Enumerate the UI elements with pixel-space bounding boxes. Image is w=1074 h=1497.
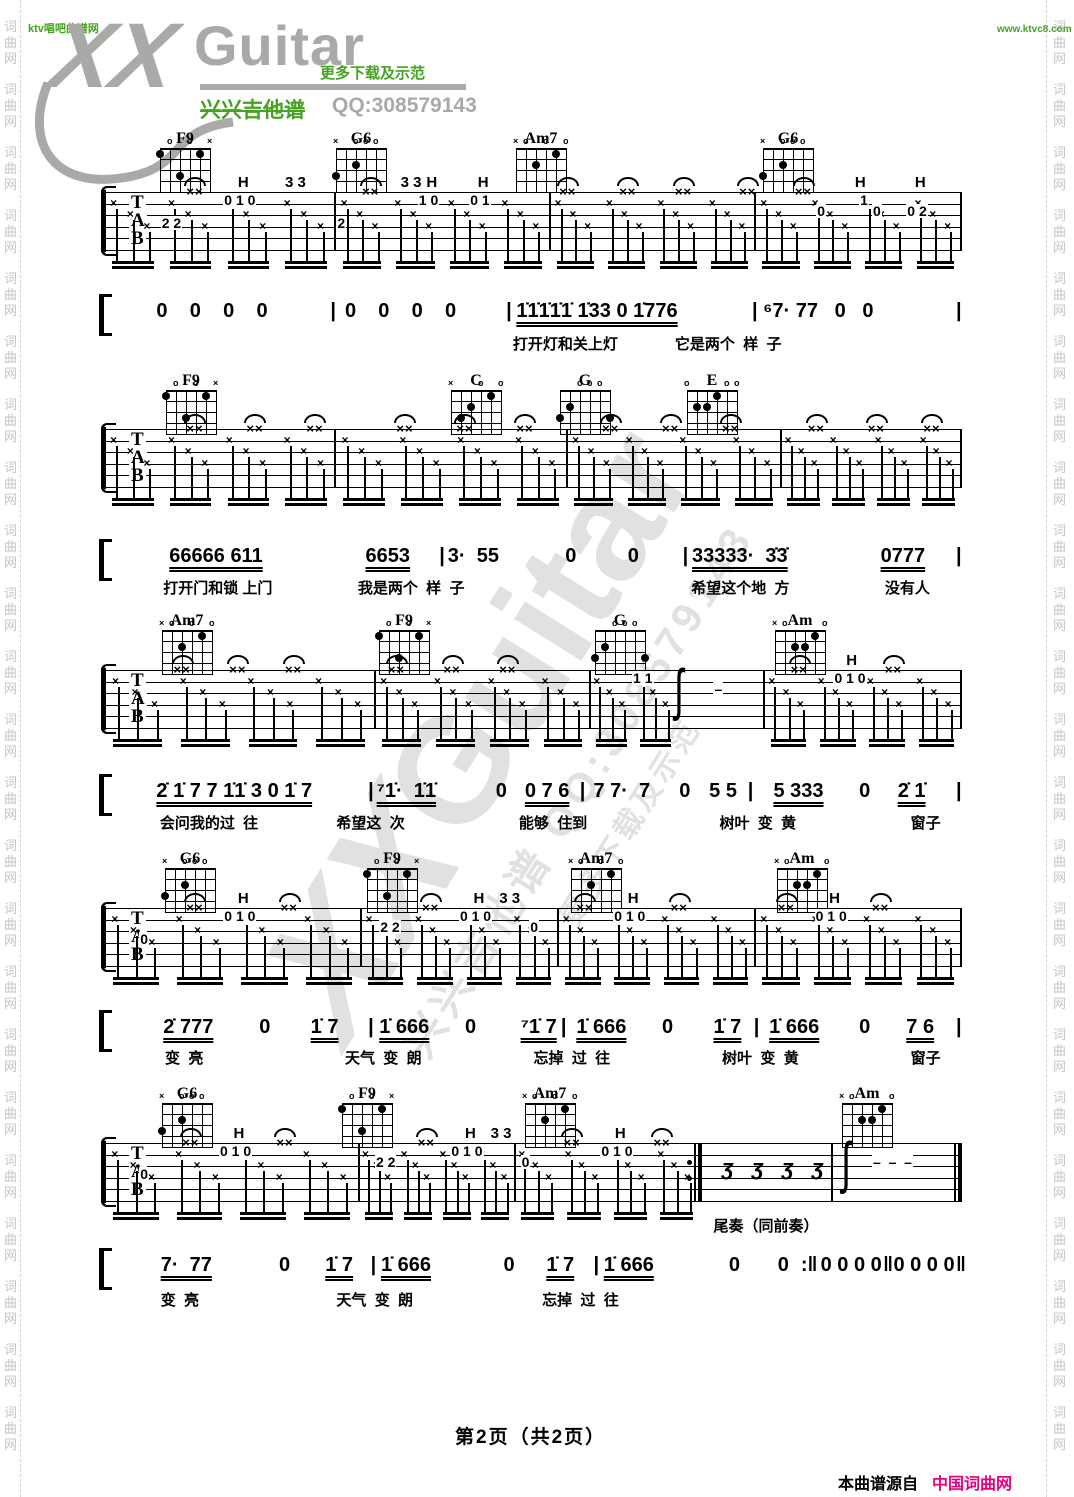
note-stem bbox=[618, 925, 620, 981]
note-stem bbox=[597, 948, 599, 981]
note-stem bbox=[327, 1171, 329, 1215]
note-stem bbox=[362, 220, 364, 264]
jianpu-segment: | bbox=[683, 543, 689, 569]
beam-bar bbox=[557, 266, 594, 269]
edge-watermark-char: 曲 bbox=[1053, 99, 1066, 112]
strum-x-mark: × bbox=[641, 445, 648, 457]
strum-x-mark: × bbox=[881, 686, 888, 698]
note-stem bbox=[521, 446, 523, 502]
strum-x-mark: × bbox=[439, 1148, 446, 1160]
strum-xx-mark: ×× bbox=[306, 422, 323, 435]
chord-fret-line bbox=[166, 390, 217, 392]
note-stem bbox=[440, 687, 442, 743]
arpeggio-wavy-line: ʃ bbox=[675, 661, 683, 719]
jianpu-segment: 1̇ 666 bbox=[381, 1252, 431, 1278]
note-stem bbox=[926, 446, 928, 502]
strum-xx-mark: ×× bbox=[362, 185, 379, 198]
open-string-mark: o bbox=[684, 379, 690, 388]
source-prefix: 本曲谱源自 bbox=[838, 1476, 918, 1493]
strum-x-mark: × bbox=[657, 197, 664, 209]
beam-bar bbox=[249, 744, 298, 747]
lyric-segment: 树叶 变 黄 bbox=[722, 1050, 799, 1068]
strum-xx-mark: ×× bbox=[563, 1136, 580, 1149]
fret-number: 0 1 0 bbox=[600, 1144, 633, 1158]
strum-x-mark: × bbox=[401, 1148, 408, 1160]
chord-name: G bbox=[555, 372, 615, 390]
strum-x-mark: × bbox=[587, 445, 594, 457]
strum-x-mark: × bbox=[380, 675, 387, 687]
beam-bar bbox=[316, 744, 365, 747]
tab-system: F9oo×G6×oooAm7×oooG6×oooTAB×××××××××××××… bbox=[0, 130, 1074, 362]
staff-bracket bbox=[101, 1141, 106, 1203]
beam-bar bbox=[382, 744, 421, 747]
note-stem bbox=[468, 1183, 470, 1216]
chord-fret-line bbox=[525, 1103, 576, 1105]
chord-fret-line bbox=[379, 630, 430, 632]
strum-x-mark: × bbox=[738, 220, 745, 232]
strum-x-mark: × bbox=[212, 1171, 219, 1183]
staff-bracket bbox=[101, 427, 106, 489]
jianpu-segment: 1̇ 7 bbox=[325, 1252, 353, 1278]
strum-x-mark: × bbox=[638, 1171, 645, 1183]
beam-bar bbox=[436, 739, 475, 742]
strum-x-mark: × bbox=[259, 457, 266, 469]
chord-fret-line bbox=[687, 401, 738, 402]
note-stem bbox=[402, 698, 404, 742]
chord-name: F9 bbox=[374, 612, 434, 630]
beam-bar bbox=[820, 744, 855, 747]
open-string-mark: o bbox=[386, 619, 392, 628]
beam-bar bbox=[181, 739, 230, 742]
open-string-mark: o bbox=[179, 1092, 185, 1101]
beam-bar bbox=[113, 1212, 159, 1215]
beam-bar bbox=[521, 1212, 554, 1215]
note-stem bbox=[117, 1160, 119, 1216]
hammer-on-mark: H bbox=[915, 175, 926, 190]
fret-number: 0 1 0 bbox=[459, 909, 492, 923]
beam-bar bbox=[814, 266, 851, 269]
note-stem bbox=[174, 446, 176, 502]
chord-finger-dot bbox=[156, 150, 164, 158]
edge-watermark-char: 曲 bbox=[4, 36, 17, 49]
beam-bar bbox=[877, 498, 909, 501]
chord-fret-line bbox=[162, 641, 213, 642]
chord-finger-dot bbox=[693, 403, 701, 411]
chord-name: F9 bbox=[155, 130, 215, 148]
open-string-mark: o bbox=[189, 1092, 195, 1101]
strum-xx-mark: ×× bbox=[186, 422, 203, 435]
jianpu-segment: ‖ bbox=[956, 1252, 966, 1278]
barline bbox=[960, 908, 962, 966]
beam-bar bbox=[177, 982, 223, 985]
strum-xx-mark: ×× bbox=[778, 901, 795, 914]
jianpu-segment: 7 7· 7 bbox=[593, 778, 650, 804]
beam-bar bbox=[443, 1212, 471, 1215]
beam-bar bbox=[608, 266, 645, 269]
chord-fret-line bbox=[763, 159, 814, 160]
fret-number: – – – bbox=[872, 1155, 913, 1169]
strum-x-mark: × bbox=[503, 686, 510, 698]
note-stem bbox=[507, 209, 509, 265]
note-stem bbox=[538, 457, 540, 501]
strum-xx-mark: ×× bbox=[456, 422, 473, 435]
strum-x-mark: × bbox=[929, 924, 936, 936]
note-stem bbox=[663, 209, 665, 265]
chord-finger-dot bbox=[868, 1116, 876, 1124]
muted-string-mark: × bbox=[774, 857, 779, 866]
note-stem bbox=[642, 232, 644, 265]
quarter-rest: ʒ bbox=[782, 1157, 794, 1179]
note-stem bbox=[796, 232, 798, 265]
strum-x-mark: × bbox=[895, 698, 902, 710]
beam-bar bbox=[490, 744, 529, 747]
beam-bar bbox=[762, 982, 799, 985]
open-string-mark: o bbox=[824, 857, 830, 866]
strum-x-mark: × bbox=[893, 936, 900, 948]
strum-x-mark: × bbox=[946, 457, 953, 469]
note-stem bbox=[469, 220, 471, 264]
note-stem bbox=[693, 232, 695, 265]
barline bbox=[374, 670, 376, 728]
note-stem bbox=[804, 457, 806, 501]
final-barline-thin bbox=[954, 1143, 956, 1201]
jianpu-segment: 0 bbox=[729, 1252, 740, 1278]
beam-bar bbox=[241, 977, 287, 980]
strum-x-mark: × bbox=[375, 457, 382, 469]
open-string-mark: o bbox=[374, 857, 380, 866]
strum-x-mark: × bbox=[626, 924, 633, 936]
strum-x-mark: × bbox=[284, 197, 291, 209]
beam-bar bbox=[417, 977, 452, 980]
open-string-mark: o bbox=[543, 137, 549, 146]
outro-label: 尾奏（同前奏） bbox=[713, 1215, 818, 1236]
note-stem bbox=[405, 446, 407, 502]
jianpu-segment: 1̇ 666 bbox=[604, 1252, 654, 1278]
strum-x-mark: × bbox=[321, 1159, 328, 1171]
fret-number: 0 bbox=[521, 1155, 531, 1169]
strum-x-mark: × bbox=[258, 924, 265, 936]
edge-watermark-char: 词 bbox=[4, 83, 17, 96]
note-stem bbox=[739, 446, 741, 502]
chord-fret-line bbox=[525, 1125, 576, 1126]
muted-string-mark: × bbox=[568, 857, 573, 866]
beam-bar bbox=[113, 744, 162, 747]
beam-bar bbox=[316, 739, 365, 742]
chord-finger-dot bbox=[607, 870, 615, 878]
beam-bar bbox=[285, 498, 327, 501]
note-stem bbox=[116, 209, 118, 265]
chord-diagram: ooo bbox=[595, 630, 646, 674]
strum-x-mark: × bbox=[944, 936, 951, 948]
hammer-on-mark: H bbox=[465, 1126, 476, 1141]
strum-x-mark: × bbox=[798, 445, 805, 457]
strum-x-mark: × bbox=[603, 457, 610, 469]
note-stem bbox=[246, 925, 248, 981]
jianpu-segment: 3· 55 bbox=[448, 543, 499, 569]
strum-x-mark: × bbox=[358, 445, 365, 457]
chord-fret-line bbox=[516, 159, 567, 160]
open-string-mark: o bbox=[173, 379, 179, 388]
muted-string-mark: × bbox=[414, 857, 419, 866]
tab-staff: TAB××××××××××××××××××××××××××××××××××××0… bbox=[105, 1143, 962, 1201]
strum-x-mark: × bbox=[193, 1159, 200, 1171]
note-stem bbox=[364, 457, 366, 501]
jianpu-segment: 2̇ 1̇ 7 7 1̇1̇ 3 0 1̇ 7 bbox=[156, 778, 312, 804]
tab-system: Am7×oooF9oo×GoooAm×ooTAB××××××××××××××××… bbox=[0, 612, 1074, 841]
beam-bar bbox=[787, 498, 819, 501]
strum-x-mark: × bbox=[944, 220, 951, 232]
barline bbox=[754, 908, 756, 966]
beam-bar bbox=[865, 266, 902, 269]
chord-finger-dot bbox=[793, 881, 801, 889]
beam-bar bbox=[343, 498, 385, 501]
note-stem bbox=[791, 446, 793, 502]
note-stem bbox=[849, 457, 851, 501]
strum-x-mark: × bbox=[690, 936, 697, 948]
strum-x-mark: × bbox=[606, 686, 613, 698]
strum-x-mark: × bbox=[176, 913, 183, 925]
note-stem bbox=[199, 1171, 201, 1215]
beam-bar bbox=[113, 982, 159, 985]
chord-finger-dot bbox=[352, 161, 360, 169]
note-stem bbox=[781, 936, 783, 980]
fret-number: 0 1 0 bbox=[450, 1144, 483, 1158]
beam-bar bbox=[404, 1217, 432, 1220]
chord-fret-line bbox=[451, 401, 502, 402]
note-stem bbox=[643, 687, 645, 743]
chord-name: F9 bbox=[161, 372, 221, 390]
hammer-on-mark: 3 3 bbox=[491, 1126, 512, 1141]
beam-bar bbox=[771, 744, 806, 747]
strum-x-mark: × bbox=[649, 686, 656, 698]
chord-finger-dot bbox=[198, 632, 206, 640]
jianpu-bracket bbox=[99, 1248, 112, 1290]
strum-x-mark: × bbox=[783, 686, 790, 698]
chord-fret-line bbox=[336, 148, 387, 150]
strum-x-mark: × bbox=[775, 924, 782, 936]
open-string-mark: o bbox=[572, 1092, 578, 1101]
fret-number: 0 1 0 bbox=[223, 909, 256, 923]
beam-bar bbox=[170, 266, 212, 269]
strum-x-mark: × bbox=[760, 197, 767, 209]
note-stem bbox=[569, 925, 571, 981]
strum-x-mark: × bbox=[493, 936, 500, 948]
strum-x-mark: × bbox=[656, 457, 663, 469]
lyric-segment: 忘掉 过 往 bbox=[542, 1292, 619, 1310]
note-stem bbox=[253, 687, 255, 743]
lyric-segment: 树叶 变 黄 bbox=[719, 815, 796, 833]
open-string-mark: o bbox=[498, 379, 504, 388]
note-stem bbox=[463, 446, 465, 502]
note-stem bbox=[181, 1160, 183, 1216]
note-stem bbox=[416, 220, 418, 264]
jianpu-segment: 1̇ 7 bbox=[713, 1014, 741, 1040]
hammer-on-mark: H bbox=[234, 1126, 245, 1141]
chord-fret-line bbox=[687, 390, 738, 392]
beam-bar bbox=[596, 739, 627, 742]
barline bbox=[514, 1143, 516, 1201]
strum-xx-mark: ×× bbox=[186, 901, 203, 914]
strum-x-mark: × bbox=[127, 445, 134, 457]
strum-x-mark: × bbox=[143, 220, 150, 232]
note-stem bbox=[563, 698, 565, 742]
chord-fret-line bbox=[160, 159, 211, 160]
beam-bar bbox=[832, 498, 864, 501]
note-stem bbox=[400, 209, 402, 265]
jianpu-segment: 7 6 bbox=[906, 1014, 934, 1040]
chord-name: C bbox=[446, 372, 506, 390]
note-stem bbox=[796, 948, 798, 981]
open-string-mark: o bbox=[782, 619, 788, 628]
note-stem bbox=[509, 698, 511, 742]
strum-x-mark: × bbox=[542, 936, 549, 948]
lyric-segment: 忘掉 过 往 bbox=[534, 1050, 611, 1068]
strum-x-mark: × bbox=[775, 208, 782, 220]
strum-x-mark: × bbox=[661, 913, 668, 925]
edge-watermark-char: 网 bbox=[4, 115, 17, 128]
strum-x-mark: × bbox=[785, 434, 792, 446]
note-stem bbox=[534, 936, 536, 980]
chord-fret-line bbox=[165, 879, 216, 880]
strum-x-mark: × bbox=[242, 445, 249, 457]
open-string-mark: o bbox=[193, 379, 199, 388]
note-stem bbox=[347, 209, 349, 265]
strum-x-mark: × bbox=[286, 698, 293, 710]
lyric-segment: 能够 住到 bbox=[519, 815, 587, 833]
open-string-mark: o bbox=[349, 1092, 355, 1101]
note-stem bbox=[283, 948, 285, 981]
jianpu-segment: | bbox=[330, 298, 336, 324]
note-stem bbox=[507, 1183, 509, 1216]
beam-bar bbox=[459, 498, 501, 501]
strum-x-mark: × bbox=[572, 698, 579, 710]
strum-x-mark: × bbox=[695, 445, 702, 457]
note-stem bbox=[457, 1171, 459, 1215]
chord-fret-line bbox=[336, 170, 387, 171]
jianpu-segment: | bbox=[593, 1252, 599, 1278]
note-stem bbox=[379, 1171, 381, 1215]
chord-fret-line bbox=[165, 890, 216, 891]
strum-x-mark: × bbox=[933, 445, 940, 457]
beam-bar bbox=[285, 261, 327, 264]
strum-x-mark: × bbox=[449, 686, 456, 698]
jianpu-segment: 0 bbox=[279, 1252, 290, 1278]
jianpu-segment: | bbox=[368, 1014, 374, 1040]
hammer-on-mark: H bbox=[478, 175, 489, 190]
chord-fret-line bbox=[162, 630, 213, 632]
strum-xx-mark: ×× bbox=[653, 1136, 670, 1149]
note-stem bbox=[321, 687, 323, 743]
jianpu-segment: | bbox=[752, 298, 758, 324]
note-stem bbox=[306, 220, 308, 264]
muted-string-mark: × bbox=[207, 137, 212, 146]
repeat-barline-thick bbox=[698, 1143, 702, 1201]
note-stem bbox=[422, 457, 424, 501]
note-stem bbox=[781, 220, 783, 264]
chord-finger-dot bbox=[813, 870, 821, 878]
beam-bar bbox=[660, 1212, 693, 1215]
chord-name: Am7 bbox=[520, 1085, 580, 1103]
lyric-segment: 窗子 bbox=[911, 1050, 941, 1068]
strum-x-mark: × bbox=[201, 457, 208, 469]
strum-x-mark: × bbox=[945, 698, 952, 710]
beam-bar bbox=[113, 977, 159, 980]
note-stem bbox=[484, 1160, 486, 1216]
edge-watermark-char: 网 bbox=[1053, 52, 1066, 65]
beam-bar bbox=[660, 266, 697, 269]
chord-finger-dot bbox=[363, 870, 371, 878]
beam-bar bbox=[814, 977, 851, 980]
strum-x-mark: × bbox=[501, 1171, 508, 1183]
muted-string-mark: × bbox=[159, 619, 164, 628]
beam-bar bbox=[711, 261, 748, 264]
beam-bar bbox=[368, 977, 403, 980]
strum-x-mark: × bbox=[317, 457, 324, 469]
chord-fret-line bbox=[763, 170, 814, 171]
hammer-on-mark: H bbox=[615, 1126, 626, 1141]
staff-line bbox=[105, 716, 962, 717]
strum-x-mark: × bbox=[131, 686, 138, 698]
note-stem bbox=[681, 936, 683, 980]
fret-number: 1 1 bbox=[632, 671, 653, 685]
note-stem bbox=[421, 925, 423, 981]
site-url-link[interactable]: www.ktvc8.com bbox=[997, 24, 1072, 35]
jianpu-segment: 0 0 0 0 bbox=[821, 1252, 882, 1278]
note-stem bbox=[609, 469, 611, 502]
note-stem bbox=[378, 232, 380, 265]
strum-x-mark: × bbox=[474, 445, 481, 457]
note-stem bbox=[789, 698, 791, 742]
chord-fret-line bbox=[571, 868, 622, 870]
strum-x-mark: × bbox=[242, 208, 249, 220]
beam-bar bbox=[557, 261, 594, 264]
jianpu-segment: | bbox=[371, 1252, 377, 1278]
note-stem bbox=[730, 220, 732, 264]
strum-x-mark: × bbox=[410, 208, 417, 220]
note-stem bbox=[655, 698, 657, 742]
note-stem bbox=[632, 446, 634, 502]
chord-fret-line bbox=[595, 630, 646, 632]
edge-watermark-char: 曲 bbox=[4, 1422, 17, 1435]
source-site-link[interactable]: 中国词曲网 bbox=[932, 1476, 1012, 1493]
beam-bar bbox=[917, 982, 954, 985]
chord-finger-dot bbox=[181, 881, 189, 889]
jianpu-segment: ⁷1̇ 7 bbox=[521, 1014, 557, 1040]
strum-x-mark: × bbox=[563, 913, 570, 925]
note-stem bbox=[200, 936, 202, 980]
chord-finger-dot bbox=[358, 1127, 366, 1135]
strum-x-mark: × bbox=[354, 698, 361, 710]
chord-fret-line bbox=[342, 1136, 393, 1137]
strum-xx-mark: ×× bbox=[186, 185, 203, 198]
open-string-mark: o bbox=[189, 619, 195, 628]
chord-finger-dot bbox=[703, 403, 711, 411]
chord-finger-dot bbox=[591, 654, 599, 662]
beam-bar bbox=[112, 503, 154, 506]
note-stem bbox=[862, 469, 864, 502]
note-stem bbox=[754, 457, 756, 501]
lyric-segment: 我是两个 样 子 bbox=[358, 580, 465, 598]
note-stem bbox=[824, 687, 826, 743]
edge-watermark-char: 曲 bbox=[1053, 1422, 1066, 1435]
note-stem bbox=[495, 1171, 497, 1215]
chord-name: E bbox=[682, 372, 742, 390]
jianpu-segment: | bbox=[956, 1014, 962, 1040]
chord-fret-line bbox=[525, 1114, 576, 1115]
jianpu-segment: 0 bbox=[778, 1252, 789, 1278]
strum-x-mark: × bbox=[606, 197, 613, 209]
chord-fret-line bbox=[451, 390, 502, 392]
